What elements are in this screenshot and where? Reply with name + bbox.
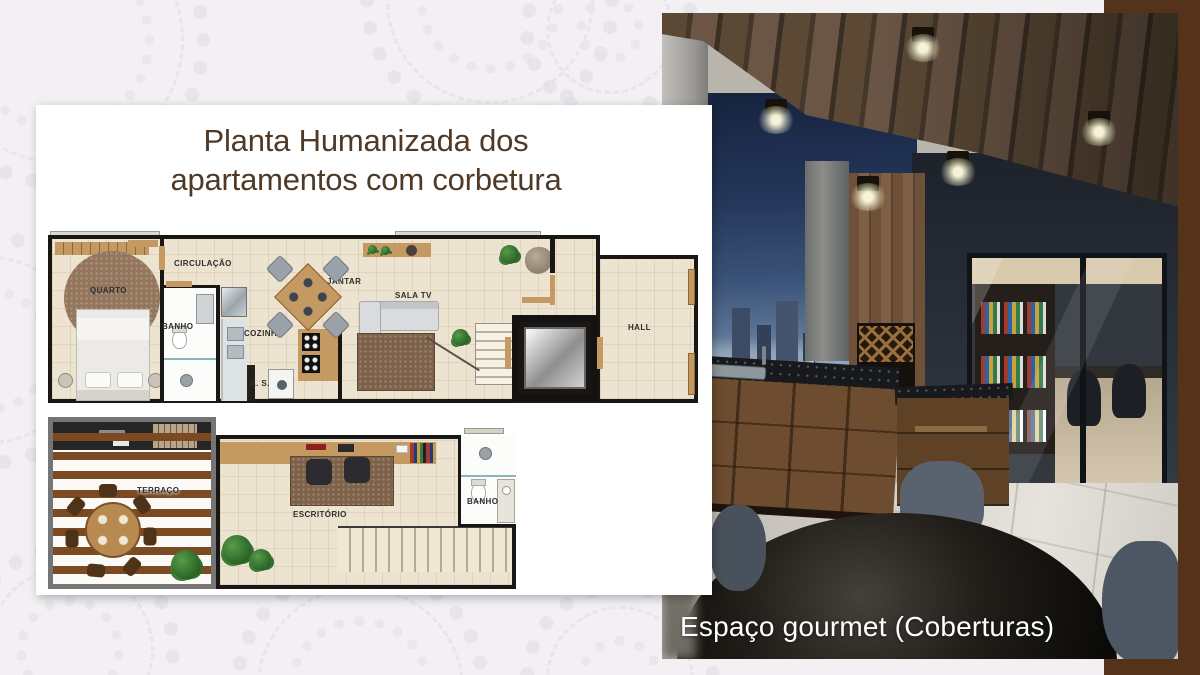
terrace-chair xyxy=(99,484,117,497)
title-line-1: Planta Humanizada dos xyxy=(36,121,696,160)
desk-monitor xyxy=(338,444,354,452)
dining-chair xyxy=(266,311,294,339)
hall-window xyxy=(688,353,695,395)
label-terraco: TERRAÇO xyxy=(137,486,179,496)
tv-rug xyxy=(357,333,435,391)
photo-caption: Espaço gourmet (Coberturas) xyxy=(680,611,1054,643)
bed xyxy=(76,309,150,401)
plant xyxy=(222,535,252,565)
floorplan-lower: TERRAÇO ESCRITÓRIO xyxy=(48,417,516,593)
shower-head xyxy=(180,374,193,387)
label-escritorio: ESCRITÓRIO xyxy=(293,510,347,520)
wine-rack xyxy=(859,326,913,362)
terrace: TERRAÇO xyxy=(48,417,216,589)
ceiling-light xyxy=(947,151,969,166)
elevator xyxy=(512,315,598,401)
ceiling-light xyxy=(765,99,787,114)
terrace-chair xyxy=(144,528,157,546)
slide-title: Planta Humanizada dos apartamentos com c… xyxy=(36,121,696,199)
dining-chair xyxy=(322,311,350,339)
office-room: ESCRITÓRIO BANHO xyxy=(216,435,516,589)
sink-basin xyxy=(502,486,511,495)
ceiling-light xyxy=(857,176,879,191)
terrace-chair xyxy=(65,495,87,517)
title-line-2: apartamentos com corbetura xyxy=(36,160,696,199)
wall-stub xyxy=(550,235,555,273)
dining-set xyxy=(262,251,354,343)
counter-sink xyxy=(227,345,244,359)
bathroom-lower: BANHO xyxy=(458,435,516,527)
interior-wall xyxy=(216,285,220,403)
window-sill xyxy=(464,428,504,434)
counter-sink xyxy=(227,327,244,341)
terrace-chair xyxy=(66,530,79,548)
door xyxy=(159,246,165,270)
label-hall: HALL xyxy=(628,323,651,333)
label-quarto: QUARTO xyxy=(90,286,127,296)
washing-machine xyxy=(268,369,294,399)
bed-pillow xyxy=(117,372,143,388)
stairs-lower xyxy=(338,526,512,572)
elevator-sill xyxy=(597,337,603,369)
hall-window xyxy=(688,269,695,305)
floorplan-upper: QUARTO CIRCULAÇÃO BANHO COZ xyxy=(48,235,698,407)
gourmet-space-photo: Espaço gourmet (Coberturas) xyxy=(662,13,1178,659)
bathroom-sink xyxy=(497,479,515,523)
plant xyxy=(368,245,377,254)
plant xyxy=(500,245,519,264)
desk-books xyxy=(410,443,434,463)
shower-head xyxy=(479,447,492,460)
desk-item-red xyxy=(306,444,326,450)
ceiling-light xyxy=(912,27,934,42)
bed-blanket xyxy=(77,390,149,400)
terrace-chair xyxy=(86,563,105,578)
bed-pillow xyxy=(85,372,111,388)
fridge xyxy=(221,287,247,317)
plant xyxy=(381,246,390,255)
stove-burners xyxy=(302,355,320,373)
label-banho-lower: BANHO xyxy=(467,497,498,507)
decor-bowl xyxy=(406,245,417,256)
desk-papers xyxy=(396,445,408,453)
door xyxy=(128,240,158,247)
washer-door xyxy=(277,380,287,390)
terrace-table xyxy=(85,502,141,558)
label-banho-upper: BANHO xyxy=(162,322,193,332)
slide-canvas: Espaço gourmet (Coberturas) Planta Human… xyxy=(0,0,1200,675)
label-area-servico: A. S. xyxy=(250,379,270,389)
plant xyxy=(171,550,201,580)
plant xyxy=(452,329,469,346)
floorplan-card: Planta Humanizada dos apartamentos com c… xyxy=(36,105,712,595)
elevator-cab xyxy=(524,327,586,389)
elevator-sill xyxy=(505,337,511,369)
plant xyxy=(250,549,272,571)
bathroom-sink xyxy=(196,294,214,324)
stone-pillar xyxy=(805,161,849,361)
dining-chair xyxy=(266,255,294,283)
bathroom-upper xyxy=(164,285,218,401)
door xyxy=(166,281,192,287)
office-chair xyxy=(344,457,370,483)
terrace-chair xyxy=(121,555,143,577)
label-sala-tv: SALA TV xyxy=(395,291,432,301)
toilet xyxy=(172,330,187,349)
shower-divider xyxy=(461,475,516,477)
dining-chair xyxy=(322,255,350,283)
ceiling-light xyxy=(1088,111,1110,126)
label-circulacao: CIRCULAÇÃO xyxy=(174,259,232,269)
faucet xyxy=(762,346,766,365)
office-chair xyxy=(306,459,332,485)
bed-sheet-fold xyxy=(77,318,149,340)
dining-chair xyxy=(1102,541,1178,659)
shower-divider xyxy=(164,358,216,360)
dining-chair xyxy=(710,505,766,591)
door-swing xyxy=(522,297,552,303)
nightstand xyxy=(58,373,73,388)
